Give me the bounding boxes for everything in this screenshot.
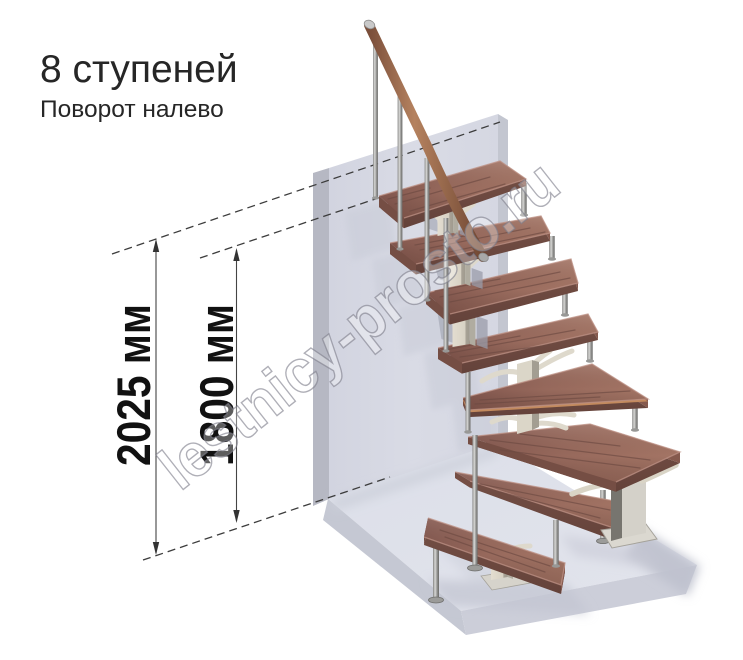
svg-text:Поворот налево: Поворот налево (40, 96, 224, 123)
svg-text:2025 мм: 2025 мм (107, 304, 160, 466)
svg-text:8 ступеней: 8 ступеней (40, 48, 238, 91)
